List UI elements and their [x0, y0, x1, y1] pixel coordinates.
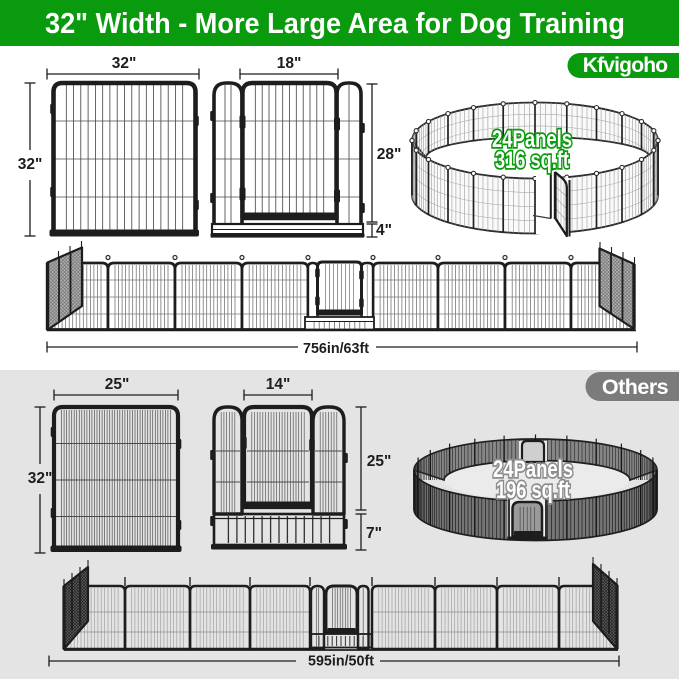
- svg-text:196 sq.ft: 196 sq.ft: [496, 477, 570, 504]
- svg-text:316 sq.ft: 316 sq.ft: [495, 147, 569, 174]
- svg-text:25": 25": [367, 453, 392, 470]
- svg-text:32": 32": [28, 470, 53, 487]
- svg-text:Others: Others: [602, 375, 669, 399]
- svg-text:4": 4": [376, 222, 392, 239]
- svg-text:18": 18": [277, 55, 302, 72]
- svg-text:32" Width - More Large Area fo: 32" Width - More Large Area for Dog Trai…: [45, 8, 625, 40]
- svg-text:756in/63ft: 756in/63ft: [303, 340, 369, 357]
- svg-text:25": 25": [105, 376, 130, 393]
- svg-text:28": 28": [377, 146, 402, 163]
- svg-text:595in/50ft: 595in/50ft: [308, 653, 374, 670]
- svg-text:7": 7": [366, 525, 382, 542]
- svg-text:32": 32": [18, 156, 43, 173]
- svg-text:14": 14": [266, 376, 291, 393]
- svg-text:Kfvigoho: Kfvigoho: [583, 54, 668, 77]
- svg-text:32": 32": [112, 55, 137, 72]
